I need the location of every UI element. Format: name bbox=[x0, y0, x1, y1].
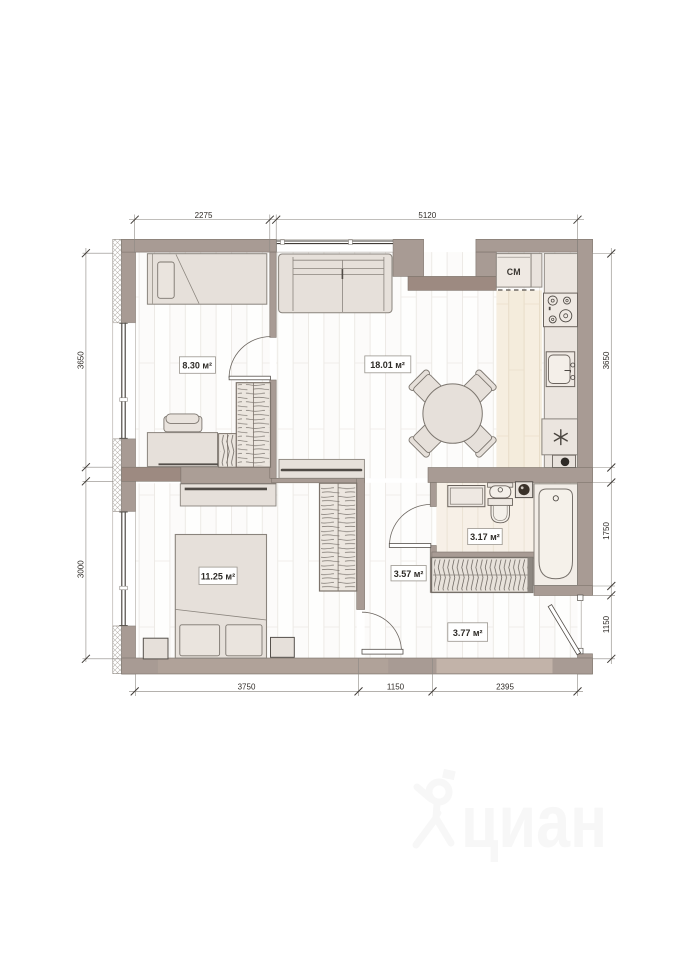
svg-text:2275: 2275 bbox=[195, 211, 213, 220]
svg-text:3000: 3000 bbox=[77, 560, 86, 578]
svg-text:5120: 5120 bbox=[418, 211, 436, 220]
svg-text:18.01 м²: 18.01 м² bbox=[370, 360, 405, 370]
svg-text:СМ: СМ bbox=[507, 267, 521, 277]
svg-text:2395: 2395 bbox=[496, 682, 514, 691]
svg-text:3650: 3650 bbox=[602, 351, 611, 369]
svg-text:3.17 м²: 3.17 м² bbox=[470, 532, 500, 542]
svg-text:3750: 3750 bbox=[238, 682, 256, 691]
svg-text:3650: 3650 bbox=[77, 351, 86, 369]
svg-text:3.77 м²: 3.77 м² bbox=[453, 628, 483, 638]
svg-text:3.57 м²: 3.57 м² bbox=[394, 569, 424, 579]
svg-text:1750: 1750 bbox=[602, 522, 611, 540]
svg-text:8.30 м²: 8.30 м² bbox=[182, 361, 212, 371]
svg-text:1150: 1150 bbox=[602, 615, 611, 633]
svg-text:циан: циан bbox=[461, 780, 607, 863]
svg-text:11.25 м²: 11.25 м² bbox=[201, 572, 235, 582]
svg-text:1150: 1150 bbox=[387, 682, 405, 691]
